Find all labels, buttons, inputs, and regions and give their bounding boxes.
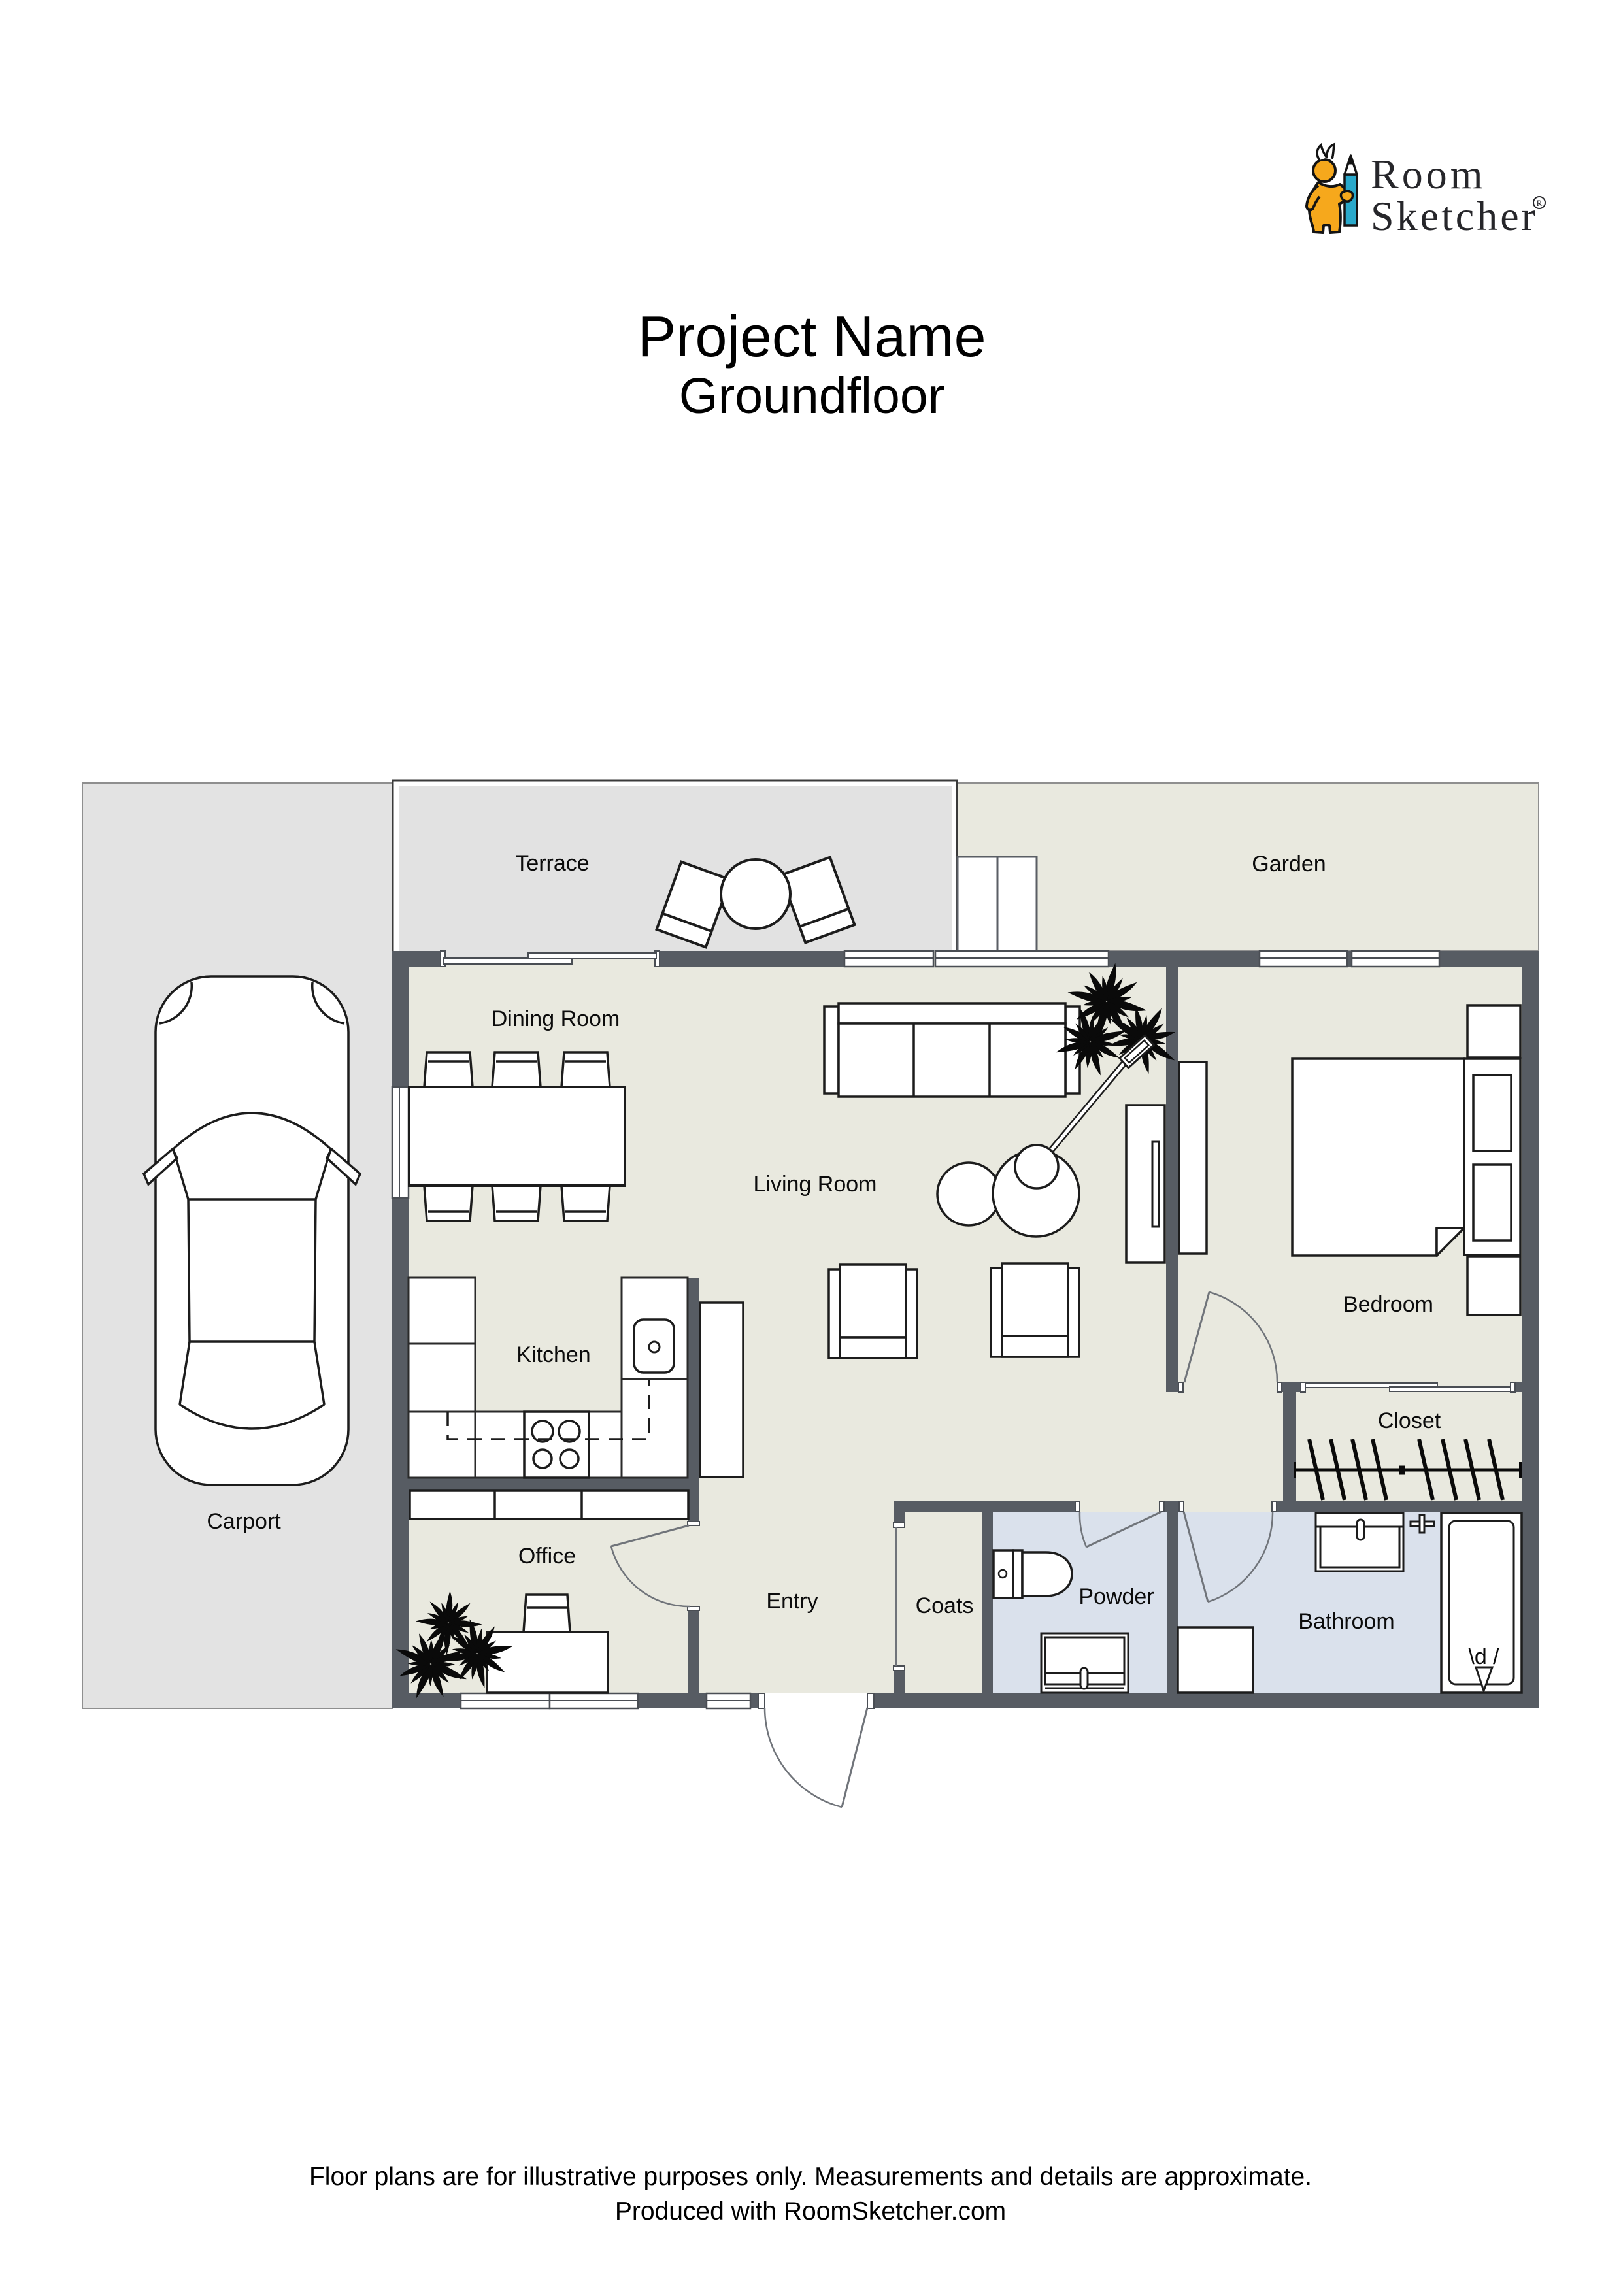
svg-text:Groundfloor: Groundfloor — [679, 368, 945, 424]
svg-text:Kitchen: Kitchen — [516, 1342, 590, 1367]
svg-text:\d /: \d / — [1468, 1644, 1499, 1669]
svg-text:Floor plans are for illustrati: Floor plans are for illustrative purpose… — [309, 2163, 1312, 2191]
svg-text:Room: Room — [1371, 151, 1486, 197]
svg-text:Sketcher: Sketcher — [1371, 193, 1538, 239]
svg-text:R: R — [1537, 198, 1543, 208]
svg-text:Bathroom: Bathroom — [1298, 1609, 1394, 1634]
svg-text:Entry: Entry — [766, 1589, 818, 1614]
svg-text:Garden: Garden — [1252, 852, 1326, 876]
svg-text:Powder: Powder — [1078, 1584, 1154, 1609]
svg-text:Project Name: Project Name — [637, 304, 986, 369]
svg-text:Coats: Coats — [916, 1593, 974, 1618]
svg-text:Dining Room: Dining Room — [492, 1007, 620, 1031]
svg-text:Living Room: Living Room — [754, 1172, 877, 1197]
svg-text:Carport: Carport — [207, 1509, 281, 1534]
svg-text:Office: Office — [518, 1544, 576, 1569]
svg-text:Terrace: Terrace — [515, 851, 589, 876]
svg-text:Produced with RoomSketcher.com: Produced with RoomSketcher.com — [615, 2197, 1006, 2225]
svg-text:Bedroom: Bedroom — [1343, 1292, 1433, 1317]
svg-text:Closet: Closet — [1378, 1408, 1441, 1433]
